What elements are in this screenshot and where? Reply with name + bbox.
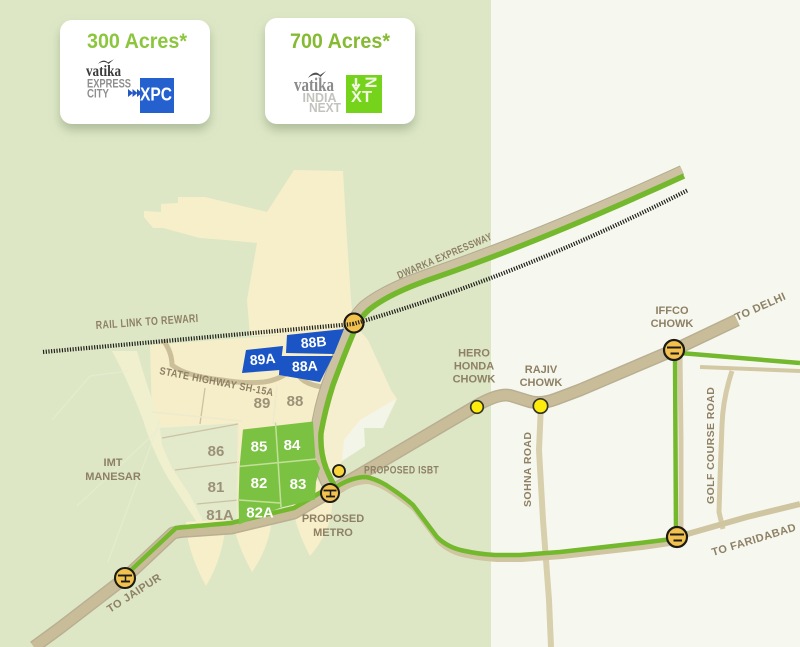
svg-text:700 Acres*: 700 Acres* — [290, 30, 391, 53]
svg-text:IFFCO: IFFCO — [656, 305, 689, 317]
svg-text:NEXT: NEXT — [309, 101, 341, 115]
svg-text:PROPOSED ISBT: PROPOSED ISBT — [364, 465, 439, 477]
svg-text:300 Acres*: 300 Acres* — [87, 30, 188, 53]
svg-text:84: 84 — [284, 437, 301, 454]
svg-text:CITY: CITY — [87, 87, 109, 101]
svg-text:METRO: METRO — [313, 527, 353, 539]
svg-text:83: 83 — [290, 476, 307, 493]
svg-text:N: N — [362, 77, 379, 89]
svg-text:MANESAR: MANESAR — [85, 471, 141, 483]
svg-text:SOHNA ROAD: SOHNA ROAD — [522, 432, 534, 507]
svg-text:82: 82 — [251, 475, 268, 492]
svg-text:86: 86 — [208, 443, 225, 460]
svg-text:CHOWK: CHOWK — [453, 374, 496, 386]
svg-text:88B: 88B — [300, 333, 327, 351]
svg-text:HERO: HERO — [458, 348, 490, 360]
svg-text:81A: 81A — [206, 507, 234, 524]
svg-text:HONDA: HONDA — [454, 361, 494, 373]
svg-text:88: 88 — [287, 393, 304, 410]
svg-text:89A: 89A — [249, 350, 276, 368]
svg-text:88A: 88A — [292, 358, 318, 375]
svg-text:PROPOSED: PROPOSED — [302, 513, 364, 525]
svg-text:CHOWK: CHOWK — [520, 377, 563, 389]
svg-text:85: 85 — [251, 439, 268, 456]
svg-text:XT: XT — [351, 89, 372, 106]
svg-text:81: 81 — [208, 479, 225, 496]
svg-text:XPC: XPC — [140, 85, 172, 105]
svg-text:82A: 82A — [246, 505, 274, 522]
svg-text:IMT: IMT — [104, 457, 123, 469]
svg-text:CHOWK: CHOWK — [651, 318, 694, 330]
svg-text:RAJIV: RAJIV — [525, 364, 558, 376]
svg-text:GOLF COURSE ROAD: GOLF COURSE ROAD — [705, 387, 717, 504]
